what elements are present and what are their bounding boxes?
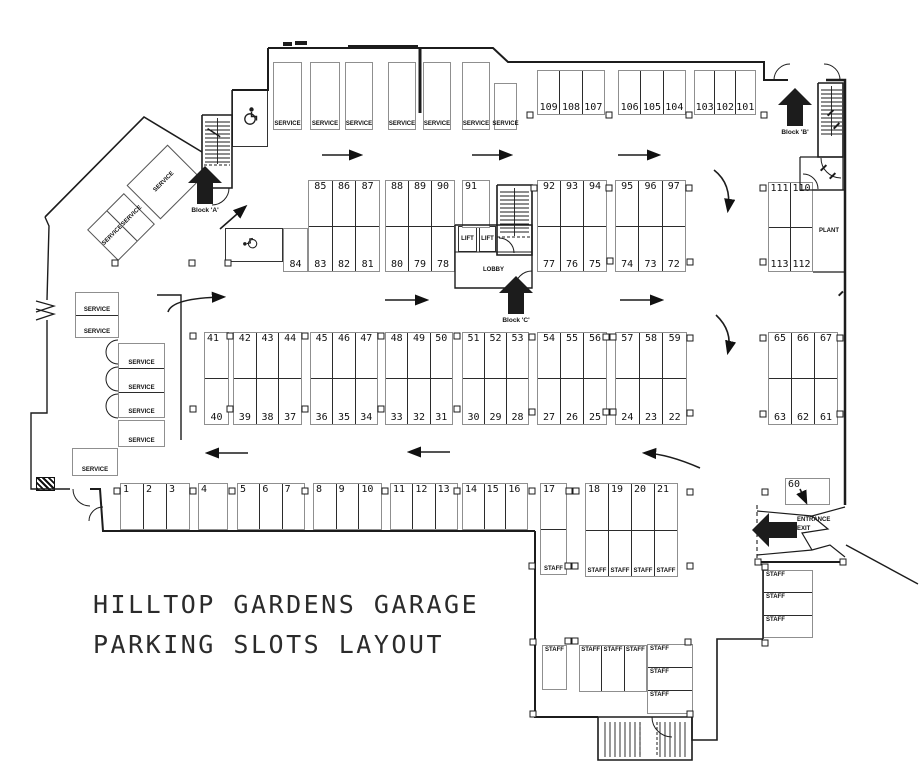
slot-label: 42 xyxy=(239,334,251,344)
slot-label: 72 xyxy=(668,260,680,270)
slot-label: 9 xyxy=(339,485,345,495)
parking-slot: 84 xyxy=(284,229,307,271)
slot-label: 37 xyxy=(284,413,296,423)
parking-slot: 86 xyxy=(332,181,356,226)
slot-label: 83 xyxy=(314,260,326,270)
slot-label: 81 xyxy=(362,260,374,270)
slot-label: 40 xyxy=(210,413,222,423)
staff-slot: STAFF xyxy=(601,646,623,691)
parking-slot: 1 xyxy=(121,484,143,529)
slot-label: 106 xyxy=(621,103,639,113)
slot-label: SERVICE xyxy=(346,121,372,128)
column-marker xyxy=(382,488,388,494)
slot-label: STAFF xyxy=(581,647,600,654)
slot-label: 78 xyxy=(437,260,449,270)
parking-slot: 37 xyxy=(278,379,301,424)
door-arc xyxy=(212,188,229,205)
parking-slot: 23 xyxy=(639,379,663,424)
slot-label: 23 xyxy=(645,413,657,423)
slot-label: 60 xyxy=(788,480,800,490)
plan-title-line1: HILLTOP GARDENS GARAGE xyxy=(93,590,479,619)
slot-label: 17 xyxy=(543,485,555,495)
slot-label: 2 xyxy=(146,485,152,495)
parking-slot: 32 xyxy=(407,379,429,424)
slot-label: 16 xyxy=(508,485,520,495)
entrance-label-line1: ENTRANCE xyxy=(797,517,830,523)
parking-slot: 27 xyxy=(538,379,560,424)
slot-label: 59 xyxy=(669,334,681,344)
slot-label: 88 xyxy=(391,182,403,192)
parking-slot: 5 xyxy=(238,484,259,529)
parking-slot: 73 xyxy=(638,227,661,272)
slot-label: 101 xyxy=(736,103,754,113)
staff-slot-group: 17STAFF xyxy=(540,483,567,575)
slot-label: 28 xyxy=(511,413,523,423)
staff-slot-group: STAFFSTAFFSTAFF xyxy=(763,570,813,638)
parking-slot: 8 xyxy=(314,484,336,529)
slot-label: 50 xyxy=(435,334,447,344)
block-label: Block 'A' xyxy=(191,207,218,214)
parking-slot: 79 xyxy=(408,227,431,272)
room-label: PLANT xyxy=(819,228,839,234)
column-marker xyxy=(762,640,768,646)
service-slot-group: SERVICE xyxy=(345,62,373,130)
parking-slot-group: 567 xyxy=(237,483,305,530)
slot-label: SERVICE xyxy=(463,121,489,128)
parking-slot: 26 xyxy=(560,379,583,424)
parking-slot-group: 575859242322 xyxy=(615,332,687,425)
slot-label: 111 xyxy=(770,184,788,194)
parking-slot-group: 545556272625 xyxy=(537,332,607,425)
slot-label: 109 xyxy=(540,103,558,113)
column-marker xyxy=(112,260,118,266)
parking-slot: 22 xyxy=(662,379,686,424)
service-slot: SERVICE xyxy=(463,63,489,129)
slot-label: 103 xyxy=(696,103,714,113)
slot-label: SERVICE xyxy=(492,121,518,128)
wall xyxy=(36,301,54,312)
parking-slot: 9 xyxy=(336,484,359,529)
slot-label: STAFF xyxy=(766,572,785,579)
parking-slot: 33 xyxy=(386,379,407,424)
slot-label: 92 xyxy=(543,182,555,192)
parking-slot: 93 xyxy=(560,181,583,226)
slot-label: 112 xyxy=(792,260,810,270)
parking-slot: 101 xyxy=(735,71,755,114)
parking-slot: 88 xyxy=(386,181,408,226)
column-marker xyxy=(378,406,384,412)
staff-slot: STAFF xyxy=(648,645,692,667)
parking-slot: 14 xyxy=(463,484,484,529)
staff-slot: STAFF xyxy=(543,646,566,689)
parking-slot: 18 xyxy=(586,484,608,530)
block-label: Block 'C' xyxy=(502,317,529,324)
parking-slot: 58 xyxy=(639,333,663,378)
parking-slot: 44 xyxy=(278,333,301,378)
parking-slot: 28 xyxy=(506,379,528,424)
column-marker xyxy=(190,488,196,494)
slot-label: 1 xyxy=(123,485,129,495)
parking-slot: 31 xyxy=(430,379,452,424)
parking-slot: 39 xyxy=(234,379,256,424)
column-marker xyxy=(687,335,693,341)
service-slot-group: SERVICE xyxy=(273,62,302,130)
slot-label: 61 xyxy=(820,413,832,423)
parking-slot: 36 xyxy=(311,379,332,424)
parking-slot: 61 xyxy=(814,379,837,424)
door-arc xyxy=(821,158,841,178)
door-arc xyxy=(652,717,672,737)
plant-room: PLANT xyxy=(813,190,845,272)
parking-slot-group: 484950333231 xyxy=(385,332,453,425)
column-marker xyxy=(529,334,535,340)
parking-slot-group: 60 xyxy=(785,478,830,505)
parking-slot: 67 xyxy=(814,333,837,378)
column-marker xyxy=(190,406,196,412)
direction-arrow xyxy=(714,170,729,210)
service-slot: SERVICE xyxy=(274,63,301,129)
slot-label: STAFF xyxy=(611,568,630,575)
parking-slot: 19 xyxy=(608,484,631,530)
parking-slot: 4 xyxy=(199,484,227,529)
parking-slot-group: 91 xyxy=(462,180,490,228)
column-marker xyxy=(755,559,761,565)
slot-label: STAFF xyxy=(545,647,564,654)
slot-label: SERVICE xyxy=(274,121,300,128)
parking-slot: 76 xyxy=(560,227,583,272)
parking-slot: 95 xyxy=(616,181,638,226)
slot-label: 104 xyxy=(665,103,683,113)
slot-label: STAFF xyxy=(766,617,785,624)
slot-label: 96 xyxy=(644,182,656,192)
parking-slot: 80 xyxy=(386,227,408,272)
parking-slot: 107 xyxy=(582,71,604,114)
slot-label: 46 xyxy=(338,334,350,344)
parking-slot: 113 xyxy=(769,228,790,272)
parking-slot: 10 xyxy=(358,484,381,529)
parking-slot: 6 xyxy=(259,484,281,529)
parking-slot: 75 xyxy=(583,227,606,272)
column-marker xyxy=(529,488,535,494)
column-marker xyxy=(686,185,692,191)
slot-label: 18 xyxy=(588,485,600,495)
parking-slot: 108 xyxy=(559,71,581,114)
column-marker xyxy=(687,259,693,265)
slot-label: SERVICE xyxy=(424,121,450,128)
door-arc xyxy=(106,367,118,391)
service-slot: SERVICE xyxy=(73,449,117,475)
parking-slot-group: 858687838281 xyxy=(308,180,380,272)
door-arc xyxy=(73,489,90,506)
slot-label: 31 xyxy=(435,413,447,423)
column-marker xyxy=(530,711,536,717)
column-marker xyxy=(840,559,846,565)
service-slot-group: SERVICE xyxy=(72,448,118,476)
parking-slot-group: 106105104 xyxy=(618,70,686,115)
parking-slot: 55 xyxy=(560,333,583,378)
door-arc xyxy=(499,238,514,253)
slot-label: 7 xyxy=(285,485,291,495)
slot-label: 34 xyxy=(360,413,372,423)
slot-label: 67 xyxy=(820,334,832,344)
slot-label: 51 xyxy=(467,334,479,344)
wall xyxy=(692,639,763,740)
service-slot: SERVICE xyxy=(311,63,339,129)
column-marker xyxy=(190,333,196,339)
slot-label: 20 xyxy=(634,485,646,495)
parking-slot-group: 111213 xyxy=(390,483,458,530)
direction-arrow xyxy=(645,453,700,468)
wall xyxy=(757,507,845,516)
slot-label: STAFF xyxy=(657,568,676,575)
column-marker xyxy=(607,258,613,264)
door-arc xyxy=(774,64,790,80)
slot-label: 65 xyxy=(774,334,786,344)
slot-label: 32 xyxy=(413,413,425,423)
slot-label: 63 xyxy=(774,413,786,423)
room-label: LOBBY xyxy=(483,267,504,273)
door-arc xyxy=(106,340,118,364)
slot-label: 30 xyxy=(467,413,479,423)
entrance-label-line2: EXIT xyxy=(797,526,810,532)
parking-slot: 45 xyxy=(311,333,332,378)
parking-slot: 109 xyxy=(538,71,559,114)
slot-label: 89 xyxy=(414,182,426,192)
slot-label: 113 xyxy=(770,260,788,270)
wall xyxy=(45,217,49,300)
slot-label: SERVICE xyxy=(101,224,124,247)
wall xyxy=(826,80,845,505)
service-slot-group: SERVICE xyxy=(494,83,517,130)
slot-label: 97 xyxy=(668,182,680,192)
slot-label: SERVICE xyxy=(120,205,143,228)
column-marker xyxy=(760,185,766,191)
plan-title-line2: PARKING SLOTS LAYOUT xyxy=(93,630,444,659)
door-arc xyxy=(106,394,118,418)
direction-arrow xyxy=(168,297,223,312)
parking-slot-group: 454647363534 xyxy=(310,332,378,425)
slot-label: 6 xyxy=(262,485,268,495)
slot-label: 56 xyxy=(589,334,601,344)
parking-slot: 25 xyxy=(583,379,606,424)
parking-slot: 11 xyxy=(391,484,412,529)
parking-slot-group: 959697747372 xyxy=(615,180,686,272)
column-marker xyxy=(572,563,578,569)
slot-label: 90 xyxy=(437,182,449,192)
staff-slot: STAFF xyxy=(654,531,677,577)
staff-slot: STAFF xyxy=(764,615,812,637)
slot-label: STAFF xyxy=(626,647,645,654)
parking-slot: 62 xyxy=(791,379,814,424)
slot-label: 94 xyxy=(589,182,601,192)
column-marker xyxy=(687,563,693,569)
staff-slot: STAFF xyxy=(586,531,608,577)
slot-label: 108 xyxy=(562,103,580,113)
slot-label: 86 xyxy=(338,182,350,192)
slot-label: 95 xyxy=(621,182,633,192)
parking-slot: 43 xyxy=(256,333,279,378)
slot-label: 55 xyxy=(566,334,578,344)
parking-slot: 77 xyxy=(538,227,560,272)
parking-slot: 106 xyxy=(619,71,640,114)
parking-slot: 104 xyxy=(663,71,685,114)
tick-mark xyxy=(820,164,827,171)
slot-label: 49 xyxy=(413,334,425,344)
slot-label: 11 xyxy=(393,485,405,495)
staff-slot-group: 18192021STAFFSTAFFSTAFFSTAFF xyxy=(585,483,678,577)
tick-mark xyxy=(295,41,307,45)
service-slot-group: SERVICESERVICESERVICE xyxy=(118,343,165,418)
slot-label: STAFF xyxy=(634,568,653,575)
parking-slot: 74 xyxy=(616,227,638,272)
parking-slot: 87 xyxy=(355,181,379,226)
slot-label: SERVICE xyxy=(84,329,110,336)
tick-mark xyxy=(838,291,844,297)
entrance-arrow xyxy=(752,513,797,547)
staff-slot-group: STAFFSTAFFSTAFF xyxy=(647,644,693,714)
slot-label: 39 xyxy=(239,413,251,423)
slot-label: STAFF xyxy=(650,646,669,653)
parking-slot-group: 103102101 xyxy=(694,70,756,115)
parking-slot: 3 xyxy=(166,484,189,529)
parking-slot: 112 xyxy=(790,228,812,272)
service-slot: SERVICE xyxy=(346,63,372,129)
parking-slot: 46 xyxy=(332,333,354,378)
tick-mark xyxy=(827,109,834,116)
slot-label: 76 xyxy=(566,260,578,270)
slot-label: 110 xyxy=(792,184,810,194)
accessible-room xyxy=(232,90,268,147)
service-slot: SERVICE xyxy=(76,293,118,315)
service-slot: SERVICE xyxy=(119,368,164,393)
column-marker xyxy=(378,333,384,339)
column-marker xyxy=(302,333,308,339)
parking-slot: 41 xyxy=(205,333,228,378)
column-marker xyxy=(530,639,536,645)
staff-slot: STAFF xyxy=(580,646,601,691)
slot-label: 14 xyxy=(465,485,477,495)
column-marker xyxy=(572,638,578,644)
staff-slot-group: STAFF xyxy=(542,645,567,690)
slot-label: 15 xyxy=(487,485,499,495)
slot-label: 43 xyxy=(261,334,273,344)
wall xyxy=(598,717,692,760)
slot-label: STAFF xyxy=(604,647,623,654)
column-marker xyxy=(565,638,571,644)
parking-slot: 38 xyxy=(256,379,279,424)
parking-slot: 72 xyxy=(662,227,685,272)
slot-label: 4 xyxy=(201,485,207,495)
block-entry-arrow xyxy=(778,88,812,126)
parking-slot: 82 xyxy=(332,227,356,272)
parking-slot: 103 xyxy=(695,71,714,114)
parking-slot-group: 84 xyxy=(283,228,308,272)
staff-slot: STAFF xyxy=(541,530,566,575)
parking-slot: 21 xyxy=(654,484,677,530)
slot-label: 91 xyxy=(465,182,477,192)
parking-slot-group: 111110113112 xyxy=(768,182,813,272)
parking-slot: 35 xyxy=(332,379,354,424)
direction-arrow xyxy=(220,207,245,229)
slot-label: SERVICE xyxy=(312,121,338,128)
slot-label: 75 xyxy=(589,260,601,270)
slot-label: 29 xyxy=(489,413,501,423)
wall xyxy=(846,545,918,584)
column-marker xyxy=(573,488,579,494)
column-marker xyxy=(454,333,460,339)
lift-room: LIFT xyxy=(479,226,496,252)
parking-slot-group: 141516 xyxy=(462,483,528,530)
service-slot-group: SERVICE xyxy=(462,62,490,130)
column-marker xyxy=(687,489,693,495)
parking-slot: 56 xyxy=(583,333,606,378)
accessible-room xyxy=(225,228,283,262)
parking-slot-group: 515253302928 xyxy=(462,332,529,425)
slot-label: 24 xyxy=(621,413,633,423)
service-slot: SERVICE xyxy=(495,84,516,129)
parking-slot: 30 xyxy=(463,379,484,424)
column-marker xyxy=(762,489,768,495)
parking-slot-group: 123 xyxy=(120,483,190,530)
parking-slot: 52 xyxy=(484,333,506,378)
slot-label: STAFF xyxy=(650,692,669,699)
parking-slot: 111 xyxy=(769,183,790,227)
slot-label: 10 xyxy=(361,485,373,495)
slot-label: 5 xyxy=(240,485,246,495)
slot-label: 73 xyxy=(644,260,656,270)
direction-arrow xyxy=(716,315,729,352)
parking-slot: 105 xyxy=(640,71,662,114)
slot-label: 12 xyxy=(415,485,427,495)
slot-label: 35 xyxy=(338,413,350,423)
parking-slot: 12 xyxy=(412,484,434,529)
column-marker xyxy=(302,406,308,412)
wall xyxy=(497,185,532,255)
parking-slot: 13 xyxy=(435,484,457,529)
parking-slot: 54 xyxy=(538,333,560,378)
slot-label: SERVICE xyxy=(152,170,175,193)
service-slot-group: SERVICE xyxy=(310,62,340,130)
column-marker xyxy=(529,563,535,569)
slot-label: SERVICE xyxy=(82,467,108,474)
column-marker xyxy=(454,406,460,412)
parking-slot-group: 109108107 xyxy=(537,70,605,115)
slot-label: 58 xyxy=(645,334,657,344)
column-marker xyxy=(761,112,767,118)
tick-mark xyxy=(833,122,840,129)
parking-slot: 29 xyxy=(484,379,506,424)
parking-slot: 63 xyxy=(769,379,791,424)
slot-label: 82 xyxy=(338,260,350,270)
service-slot: SERVICE xyxy=(119,392,164,417)
slot-label: SERVICE xyxy=(128,385,154,392)
slot-label: STAFF xyxy=(544,566,563,573)
parking-slot: 57 xyxy=(616,333,639,378)
parking-slot-group: 424344393837 xyxy=(233,332,302,425)
service-slot: SERVICE xyxy=(424,63,450,129)
column-marker xyxy=(606,112,612,118)
parking-slot: 50 xyxy=(430,333,452,378)
slot-label: 105 xyxy=(643,103,661,113)
column-marker xyxy=(229,488,235,494)
slot-label: 21 xyxy=(657,485,669,495)
column-marker xyxy=(760,259,766,265)
slot-label: 53 xyxy=(511,334,523,344)
staff-slot: STAFF xyxy=(764,571,812,592)
slot-label: STAFF xyxy=(650,669,669,676)
parking-slot: 94 xyxy=(583,181,606,226)
service-slot-group: SERVICESERVICE xyxy=(75,292,119,338)
